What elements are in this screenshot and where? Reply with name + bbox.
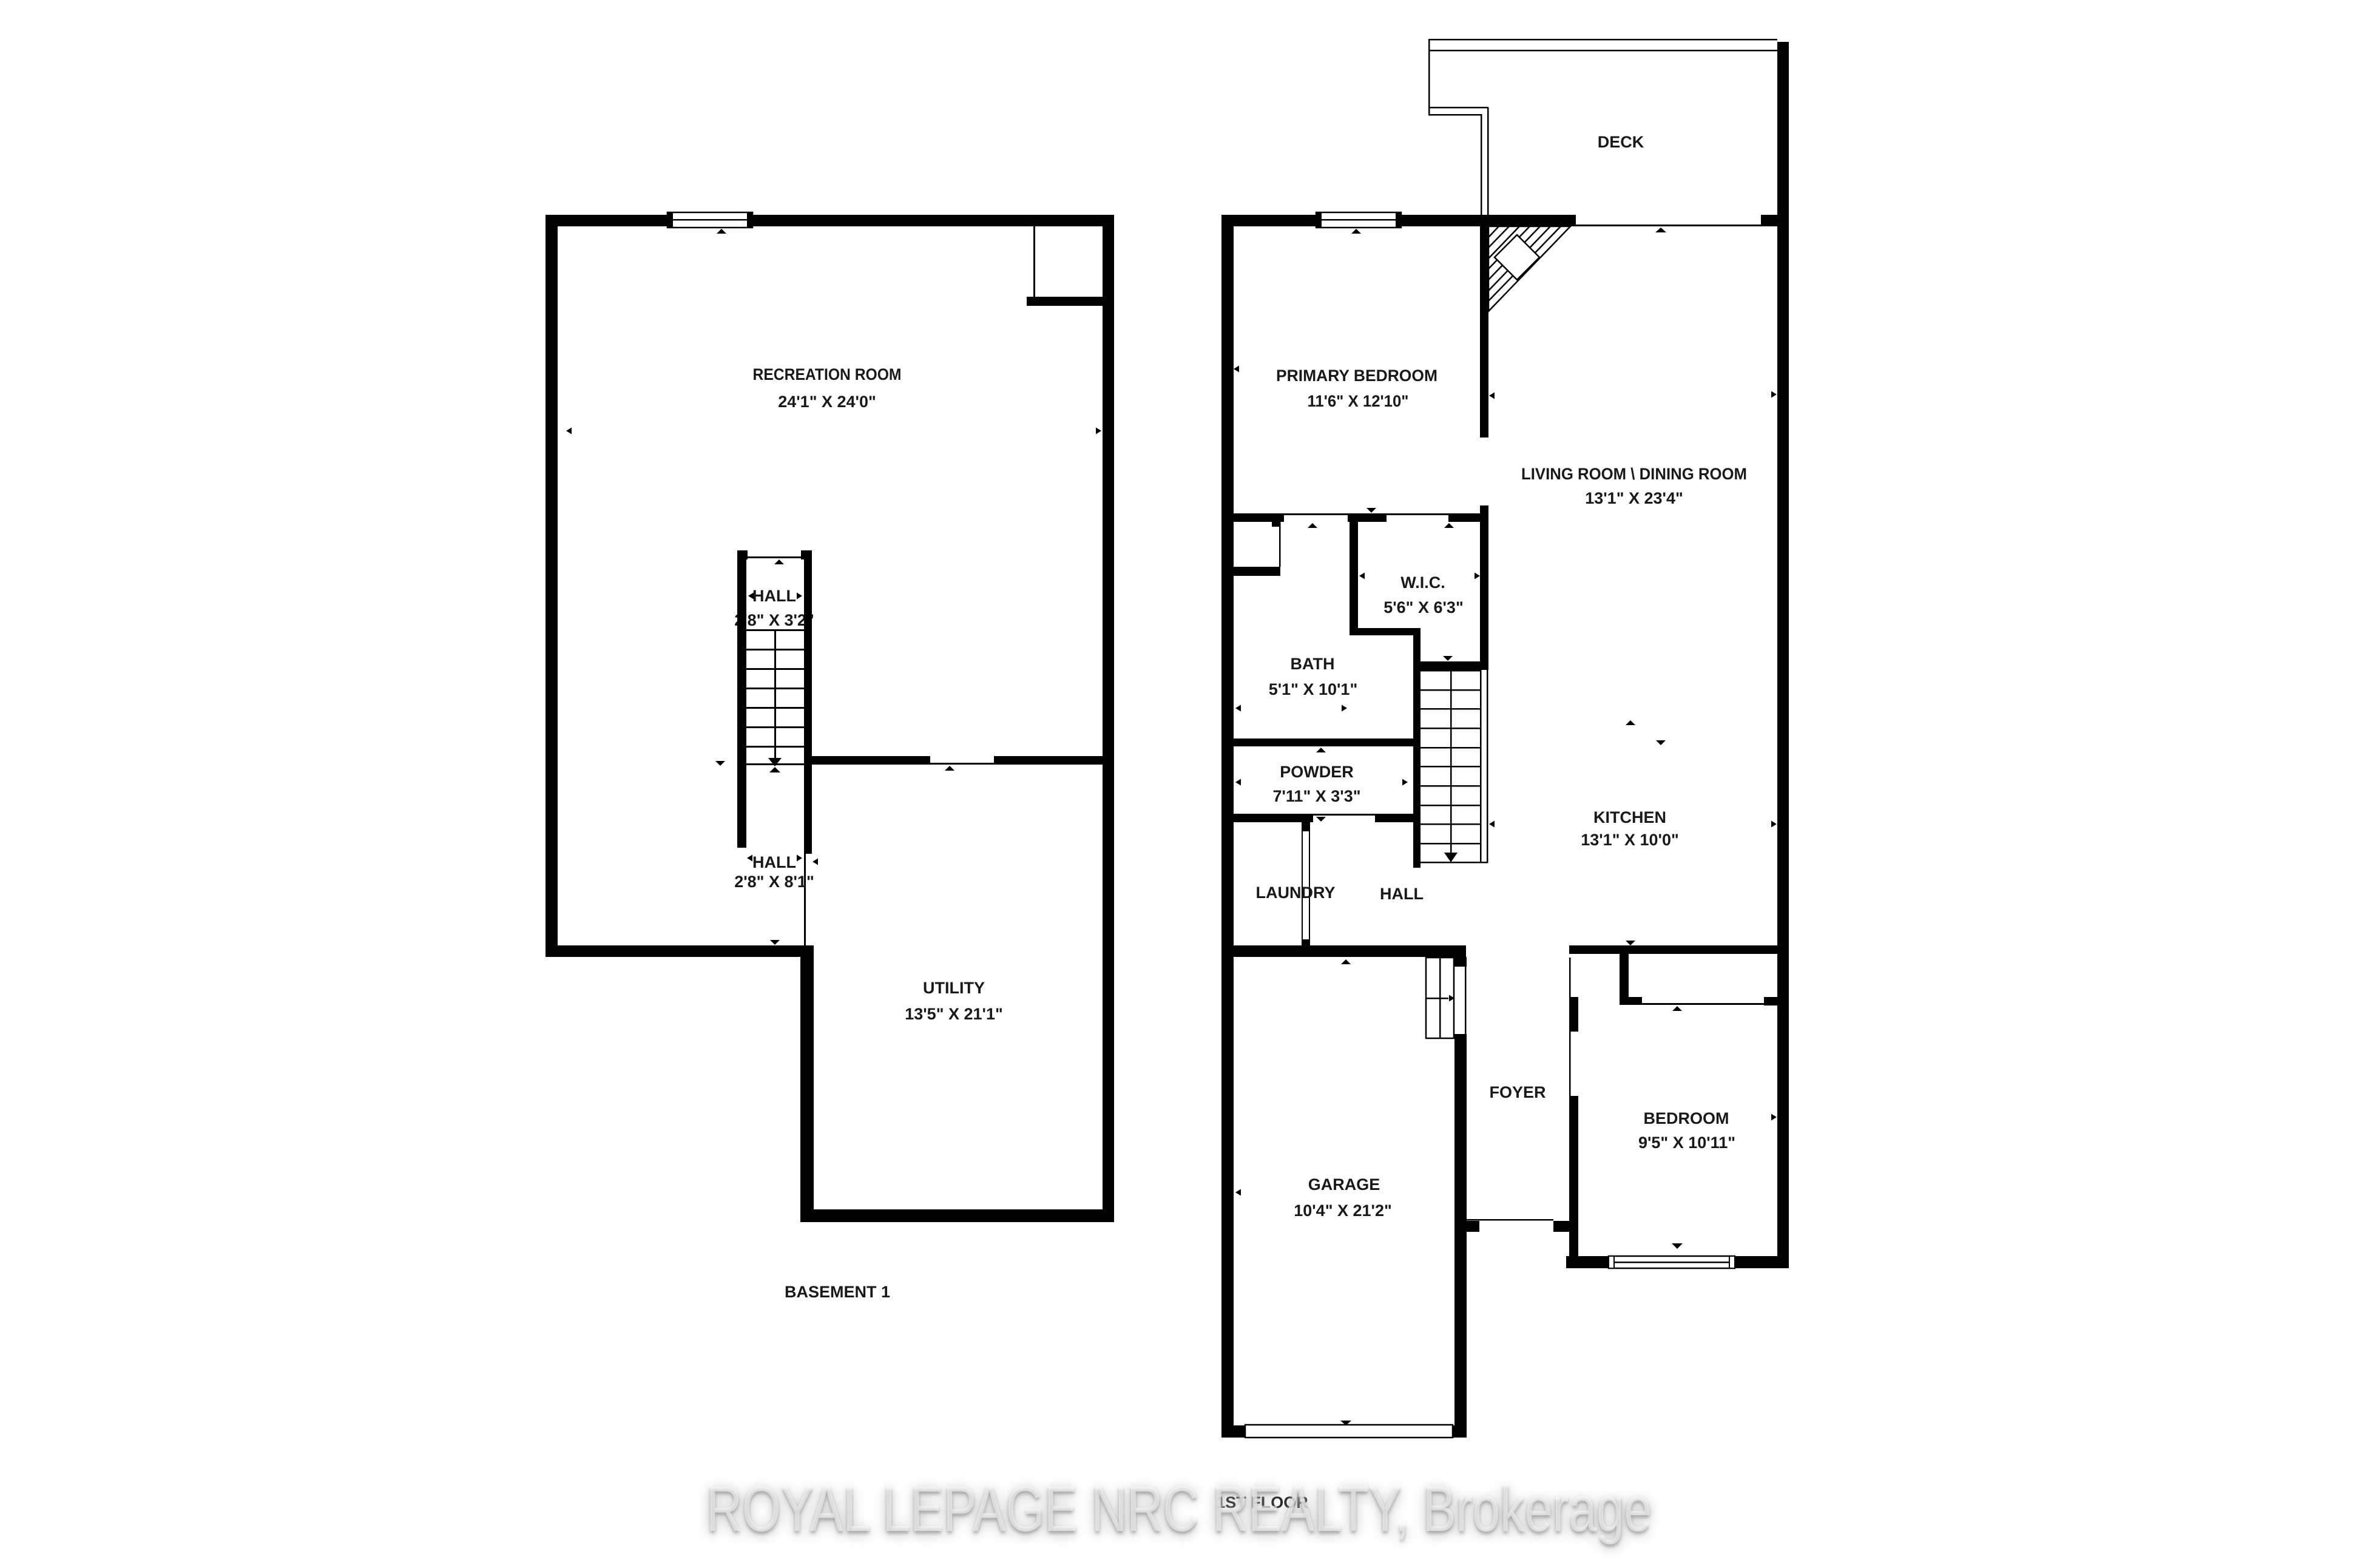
svg-text:HALL: HALL	[752, 587, 796, 605]
svg-text:ROYAL LEPAGE NRC REALTY, Broke: ROYAL LEPAGE NRC REALTY, Brokerage	[706, 1473, 1652, 1545]
svg-text:BATH: BATH	[1291, 655, 1335, 673]
svg-text:UTILITY: UTILITY	[923, 979, 985, 997]
svg-text:10'4" X 21'2": 10'4" X 21'2"	[1294, 1201, 1392, 1220]
svg-text:DECK: DECK	[1598, 133, 1644, 151]
svg-text:HALL: HALL	[1380, 885, 1424, 903]
svg-text:7'11" X 3'3": 7'11" X 3'3"	[1272, 787, 1360, 805]
svg-text:LIVING ROOM \ DINING ROOM: LIVING ROOM \ DINING ROOM	[1521, 465, 1747, 483]
svg-text:GARAGE: GARAGE	[1308, 1175, 1380, 1194]
svg-text:13'5" X 21'1": 13'5" X 21'1"	[905, 1005, 1003, 1023]
svg-text:PRIMARY BEDROOM: PRIMARY BEDROOM	[1276, 367, 1437, 385]
svg-text:2'8" X 8'1": 2'8" X 8'1"	[734, 873, 814, 891]
svg-text:RECREATION ROOM: RECREATION ROOM	[753, 365, 902, 384]
svg-text:5'6" X 6'3": 5'6" X 6'3"	[1383, 598, 1464, 617]
svg-text:HALL: HALL	[752, 853, 796, 871]
svg-text:KITCHEN: KITCHEN	[1593, 808, 1666, 826]
svg-text:13'1" X 10'0": 13'1" X 10'0"	[1581, 831, 1679, 849]
svg-text:LAUNDRY: LAUNDRY	[1256, 884, 1336, 902]
svg-text:9'5" X 10'11": 9'5" X 10'11"	[1638, 1134, 1735, 1152]
svg-text:FOYER: FOYER	[1489, 1083, 1546, 1101]
svg-text:BASEMENT 1: BASEMENT 1	[785, 1283, 890, 1301]
svg-text:POWDER: POWDER	[1280, 763, 1354, 781]
svg-text:BEDROOM: BEDROOM	[1644, 1109, 1729, 1127]
svg-text:11'6" X 12'10": 11'6" X 12'10"	[1308, 392, 1409, 410]
svg-text:W.I.C.: W.I.C.	[1400, 573, 1445, 592]
svg-text:24'1" X 24'0": 24'1" X 24'0"	[778, 393, 876, 411]
svg-text:5'1" X 10'1": 5'1" X 10'1"	[1269, 680, 1358, 698]
svg-text:13'1" X 23'4": 13'1" X 23'4"	[1585, 489, 1683, 507]
